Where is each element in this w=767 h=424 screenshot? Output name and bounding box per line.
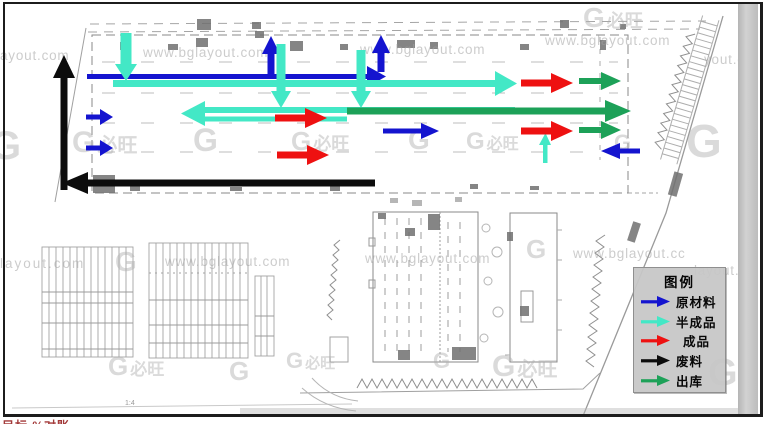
legend-item-raw-material: 原材料: [634, 292, 725, 312]
frame-border-right: [760, 2, 763, 417]
flow-semi-finished: [113, 33, 551, 163]
scale-note: 1:4: [125, 400, 135, 407]
legend-box: 图例 原材料 半成品 成品 废料 出库: [633, 267, 726, 393]
legend-item-label: 原材料: [676, 292, 717, 311]
waste-arrow-icon: [641, 354, 671, 367]
semi-finished-arrow-icon: [641, 315, 671, 328]
legend-item-finished: 成品: [634, 331, 725, 351]
raw-material-arrow-icon: [641, 295, 671, 308]
legend-item-label: 半成品: [676, 312, 717, 331]
frame-border-top: [3, 2, 763, 4]
legend-item-label: 废料: [676, 351, 703, 370]
legend-title: 图例: [634, 271, 725, 291]
clipped-caption-text: 目标 %对账: [2, 417, 70, 424]
frame-border-left: [3, 2, 5, 417]
legend-item-outbound: 出库: [634, 370, 725, 390]
legend-item-semi-finished: 半成品: [634, 312, 725, 332]
legend-item-waste: 废料: [634, 351, 725, 371]
scan-shadow-right: [738, 4, 758, 414]
legend-item-label: 成品: [683, 331, 710, 350]
factory-layout-slide: ayout.com www.bglayout.com www.bglayout.…: [0, 0, 767, 424]
frame-border-bottom: [3, 414, 763, 417]
outbound-arrow-icon: [641, 374, 671, 387]
finished-arrow-icon: [641, 334, 671, 347]
legend-item-label: 出库: [676, 371, 703, 390]
